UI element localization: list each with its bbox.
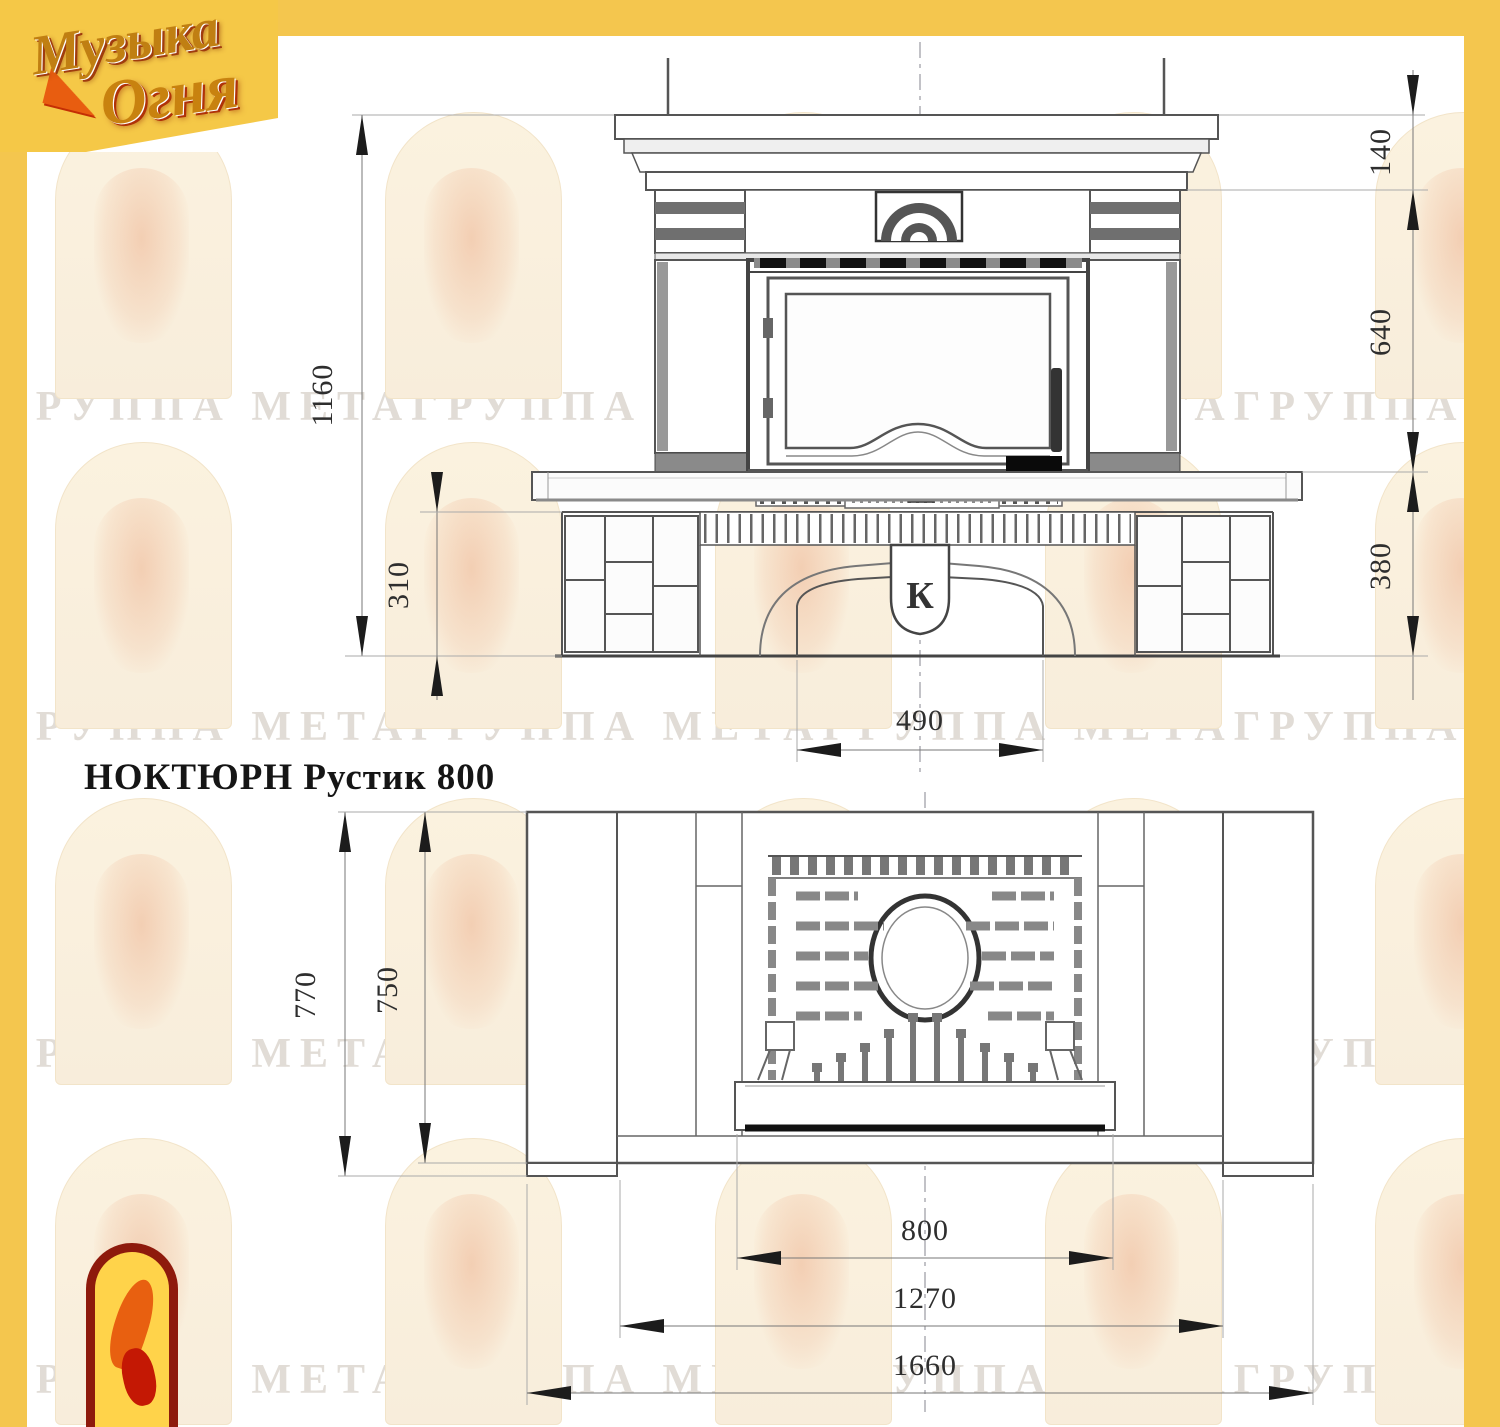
page-title: НОКТЮРН Рустик 800 (84, 756, 495, 799)
flue-circle (871, 896, 979, 1020)
chimney-pipes (668, 58, 1164, 115)
brand-logo: Музыка Огня (0, 0, 278, 152)
plan-view: 770 750 800 1270 1660 (289, 792, 1313, 1412)
door-handle (1051, 368, 1062, 452)
dim-front-plinth-height: 310 (382, 561, 415, 609)
fireplace-technical-drawing: К 1160 310 140 640 380 (0, 0, 1500, 1427)
dim-front-total-height: 1160 (306, 364, 339, 427)
right-pillar (1087, 260, 1180, 472)
dim-plan-body-depth: 750 (371, 966, 404, 1014)
insert-platform (735, 1082, 1115, 1130)
hearth-shelf (532, 472, 1302, 500)
cornice (615, 115, 1218, 190)
front-elevation-view: К 1160 310 140 640 380 (306, 42, 1428, 778)
dim-front-middle-height: 640 (1364, 308, 1397, 356)
keystone-letter: К (906, 575, 934, 617)
firebox-door (748, 258, 1088, 472)
firebird-emblem (86, 1243, 178, 1427)
dim-front-opening-width: 490 (896, 704, 944, 737)
dim-front-firebox-floor-height: 380 (1364, 542, 1397, 590)
dim-plan-insert-width: 800 (901, 1214, 949, 1247)
left-pillar (655, 260, 748, 472)
door-hinge (763, 318, 773, 338)
dim-front-cornice-height: 140 (1364, 128, 1397, 176)
door-hinge (763, 398, 773, 418)
ash-lip (1006, 456, 1062, 472)
dim-plan-front-width: 1270 (893, 1282, 957, 1315)
base-arch: К (760, 545, 1075, 656)
frieze (655, 190, 1180, 260)
firebird-icon (95, 1252, 169, 1427)
dim-plan-total-depth: 770 (289, 971, 322, 1019)
stone-blocks-left (565, 516, 698, 652)
fan-ornament (876, 192, 962, 241)
dim-plan-total-width: 1660 (893, 1349, 957, 1382)
base-plinth: К (555, 512, 1280, 656)
frame-strip-left (0, 0, 27, 1427)
door-glass (786, 294, 1050, 448)
stone-blocks-right (1137, 516, 1270, 652)
page: { "title": "НОКТЮРН Рустик 800", "logo":… (0, 0, 1500, 1427)
frame-strip-right (1464, 0, 1500, 1427)
